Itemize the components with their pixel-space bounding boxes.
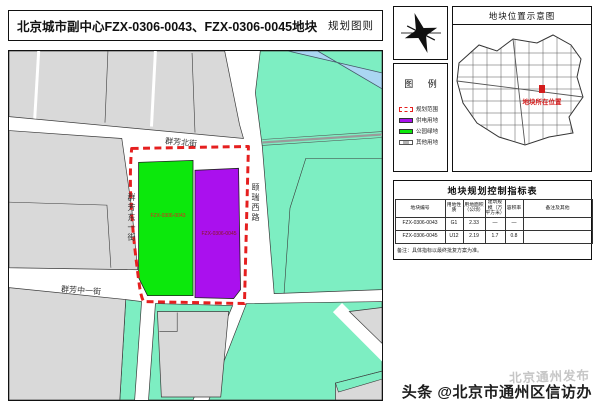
legend-label: 公园绿地 xyxy=(416,127,438,135)
doc-type-label: 规划图则 xyxy=(328,18,374,33)
col-header: 用地面积（公顷） xyxy=(463,200,485,218)
table-note: 备注：具体指标以最终批复方案为准。 xyxy=(394,244,591,254)
legend-item-boundary: 规划范围 xyxy=(399,105,447,113)
col-header: 备注及其他 xyxy=(523,200,592,218)
legend-swatch-other xyxy=(399,140,413,145)
zoning-map: 群芳北街 群芳东一街 颐瑞西路 群芳中一街 FZX-0306-0043 FZX-… xyxy=(8,50,383,401)
cell-area: 2.19 xyxy=(463,230,485,243)
col-header: 地块编号 xyxy=(395,200,445,218)
location-map-title: 地块位置示意图 xyxy=(453,7,591,25)
plan-sheet: 北京城市副中心FZX-0306-0043、FZX-0306-0045地块 规划图… xyxy=(0,0,600,413)
cell-gfa: 1.7 xyxy=(485,230,505,243)
cell-remarks xyxy=(523,217,592,230)
block-west xyxy=(9,131,138,270)
legend-item-other: 其他用地 xyxy=(399,138,447,146)
legend-item-park: 公园绿地 xyxy=(399,127,447,135)
legend-label: 其他用地 xyxy=(416,138,438,146)
legend-label: 规划范围 xyxy=(416,105,438,113)
title-bar: 北京城市副中心FZX-0306-0043、FZX-0306-0045地块 规划图… xyxy=(8,10,383,41)
cell-plot-id: FZX-0306-0043 xyxy=(395,217,445,230)
plot-fzx-0306-0043 xyxy=(139,160,193,295)
location-map-canvas: 地块所在位置 xyxy=(453,25,589,169)
legend-item-utility: 供电用地 xyxy=(399,116,447,124)
col-header: 容积率 xyxy=(505,200,523,218)
legend-label: 供电用地 xyxy=(416,116,438,124)
block-northwest xyxy=(9,51,243,138)
table-row: FZX-0306-0043 G1 2.33 — — xyxy=(395,217,592,230)
plot-location-label: 地块所在位置 xyxy=(523,97,563,106)
district-outline xyxy=(457,35,583,145)
watermark-main: 头条 @北京市通州区信访办 xyxy=(402,381,592,402)
road-label-east: 颐瑞西路 xyxy=(251,183,259,223)
street-label-west: 群芳东一街 xyxy=(127,193,135,243)
block-southwest xyxy=(9,288,126,400)
location-map-panel: 地块位置示意图 地块所在位置 xyxy=(452,6,592,172)
plot-id-label-0045: FZX-0306-0045 xyxy=(197,232,241,237)
table-row: FZX-0306-0045 U12 2.19 1.7 0.8 xyxy=(395,230,592,243)
north-arrow-icon xyxy=(396,9,446,57)
cell-land-use: U12 xyxy=(445,230,463,243)
indicator-table-panel: 地块规划控制指标表 地块编号 用地性质 用地面积（公顷） 建筑规模（万平方米） … xyxy=(393,180,592,260)
cell-area: 2.33 xyxy=(463,217,485,230)
cell-plot-id: FZX-0306-0045 xyxy=(395,230,445,243)
col-header: 建筑规模（万平方米） xyxy=(485,200,505,218)
table-header-row: 地块编号 用地性质 用地面积（公顷） 建筑规模（万平方米） 容积率 备注及其他 xyxy=(395,200,592,218)
legend-panel: 图 例 规划范围 供电用地 公园绿地 其他用地 xyxy=(393,63,448,172)
green-space-east xyxy=(255,51,382,294)
indicator-table-title: 地块规划控制指标表 xyxy=(394,181,591,199)
page-title: 北京城市副中心FZX-0306-0043、FZX-0306-0045地块 xyxy=(17,16,317,35)
indicator-table: 地块编号 用地性质 用地面积（公顷） 建筑规模（万平方米） 容积率 备注及其他 … xyxy=(395,199,593,244)
legend-swatch-utility xyxy=(399,118,413,123)
plot-location-marker xyxy=(539,85,545,93)
cell-gfa: — xyxy=(485,217,505,230)
col-header: 用地性质 xyxy=(445,200,463,218)
legend-title: 图 例 xyxy=(394,77,447,90)
legend-swatch-park xyxy=(399,129,413,134)
cell-far: 0.8 xyxy=(505,230,523,243)
plot-id-label-0043: FZX-0306-0043 xyxy=(141,214,195,219)
block-south xyxy=(157,312,228,398)
cell-land-use: G1 xyxy=(445,217,463,230)
zoning-map-canvas xyxy=(9,51,382,400)
legend-items: 规划范围 供电用地 公园绿地 其他用地 xyxy=(394,105,447,146)
compass-panel xyxy=(393,6,448,60)
cell-far: — xyxy=(505,217,523,230)
cell-remarks xyxy=(523,230,592,243)
legend-swatch-boundary xyxy=(399,107,413,112)
